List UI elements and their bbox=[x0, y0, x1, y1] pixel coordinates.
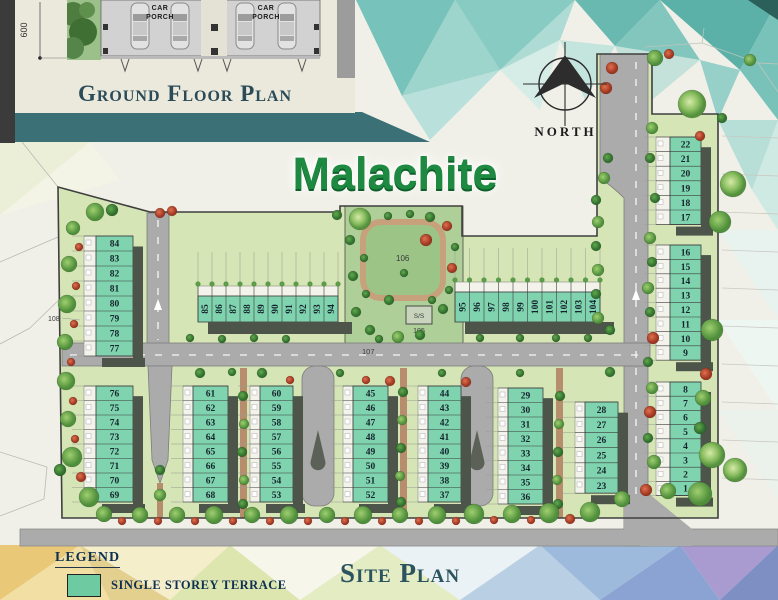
tree-icon bbox=[645, 307, 655, 317]
tree-icon bbox=[552, 475, 562, 485]
lot-73: 73 bbox=[110, 433, 120, 443]
tree-icon bbox=[461, 377, 471, 387]
lot-26: 26 bbox=[597, 436, 607, 446]
site-plan-page: 8483828180797877767574737271706985868788… bbox=[0, 0, 778, 600]
lot-62: 62 bbox=[206, 404, 216, 414]
north-compass: NORTH bbox=[518, 36, 613, 146]
compass-icon bbox=[518, 36, 613, 131]
lot-16: 16 bbox=[681, 248, 691, 258]
lot-82: 82 bbox=[110, 270, 120, 280]
tree-icon bbox=[60, 411, 76, 427]
tree-icon bbox=[70, 320, 78, 328]
lot-72: 72 bbox=[110, 447, 120, 457]
tree-icon bbox=[428, 296, 436, 304]
lot-33: 33 bbox=[521, 449, 531, 459]
tree-icon bbox=[169, 507, 185, 523]
tree-icon bbox=[695, 390, 711, 406]
lot-12: 12 bbox=[681, 306, 691, 316]
tree-icon bbox=[238, 499, 248, 509]
tree-icon bbox=[678, 90, 706, 118]
lot-36: 36 bbox=[521, 493, 531, 503]
left-dark-bar bbox=[0, 0, 15, 143]
tree-icon bbox=[584, 334, 592, 342]
lot-47: 47 bbox=[366, 418, 376, 428]
dimension-label: 600 bbox=[19, 22, 29, 37]
lot-57: 57 bbox=[272, 433, 282, 443]
lot-38: 38 bbox=[440, 476, 450, 486]
car-icon bbox=[278, 3, 296, 49]
tree-icon bbox=[76, 472, 86, 482]
lot-70: 70 bbox=[110, 476, 120, 486]
tree-icon bbox=[392, 331, 404, 343]
lot-93: 93 bbox=[313, 304, 323, 314]
tree-icon bbox=[195, 368, 205, 378]
tree-icon bbox=[345, 235, 355, 245]
lot-98: 98 bbox=[502, 302, 512, 312]
tree-icon bbox=[155, 465, 165, 475]
tree-icon bbox=[341, 517, 349, 525]
tree-icon bbox=[516, 369, 524, 377]
compass-label: NORTH bbox=[518, 124, 613, 140]
tree-icon bbox=[592, 264, 604, 276]
tree-icon bbox=[154, 517, 162, 525]
lot-22: 22 bbox=[681, 141, 691, 151]
lot-87: 87 bbox=[229, 304, 239, 314]
tree-icon bbox=[646, 382, 658, 394]
lot-31: 31 bbox=[521, 420, 531, 430]
tree-icon bbox=[351, 307, 361, 317]
lot-23: 23 bbox=[597, 482, 607, 492]
lot-40: 40 bbox=[440, 447, 450, 457]
tree-icon bbox=[378, 517, 386, 525]
tree-icon bbox=[527, 516, 535, 524]
lot-27: 27 bbox=[597, 421, 607, 431]
lot-19: 19 bbox=[681, 184, 691, 194]
lot-56: 56 bbox=[272, 447, 282, 457]
tree-icon bbox=[700, 368, 712, 380]
tree-icon bbox=[86, 203, 104, 221]
lot-35: 35 bbox=[521, 478, 531, 488]
lot-13: 13 bbox=[681, 292, 691, 302]
tree-icon bbox=[647, 257, 657, 267]
lot-71: 71 bbox=[110, 462, 120, 472]
lot-28: 28 bbox=[597, 406, 607, 416]
lot-88: 88 bbox=[243, 304, 253, 314]
lot-97: 97 bbox=[487, 302, 497, 312]
tree-icon bbox=[229, 517, 237, 525]
lot-67: 67 bbox=[206, 476, 216, 486]
legend-swatch bbox=[67, 574, 101, 597]
legend-heading: LEGEND bbox=[55, 550, 120, 568]
tree-icon bbox=[319, 507, 335, 523]
tree-icon bbox=[643, 357, 653, 367]
lot-101: 101 bbox=[545, 300, 555, 315]
ground-floor-plan-drawing: 600 CAR PORCH CAR P bbox=[15, 0, 355, 78]
tree-icon bbox=[239, 419, 249, 429]
tree-icon bbox=[598, 172, 610, 184]
tree-icon bbox=[205, 506, 223, 524]
tree-icon bbox=[282, 335, 290, 343]
lot-4: 4 bbox=[683, 442, 688, 452]
lot-76: 76 bbox=[110, 389, 120, 399]
tree-icon bbox=[605, 367, 615, 377]
lot-85: 85 bbox=[201, 304, 211, 314]
tree-icon bbox=[362, 376, 370, 384]
tree-icon bbox=[503, 505, 521, 523]
svg-text:CAR: CAR bbox=[152, 5, 169, 12]
tree-icon bbox=[67, 358, 75, 366]
tree-icon bbox=[238, 391, 248, 401]
tree-icon bbox=[688, 482, 712, 506]
tree-icon bbox=[154, 489, 166, 501]
tree-icon bbox=[592, 216, 604, 228]
lot-49: 49 bbox=[366, 447, 376, 457]
tree-icon bbox=[304, 517, 312, 525]
tree-icon bbox=[645, 153, 655, 163]
lot-78: 78 bbox=[110, 330, 120, 340]
tree-icon bbox=[392, 507, 408, 523]
lot-52: 52 bbox=[366, 491, 376, 501]
tree-icon bbox=[365, 325, 375, 335]
tree-icon bbox=[447, 263, 457, 273]
tree-icon bbox=[266, 517, 274, 525]
tree-icon bbox=[360, 254, 368, 262]
garden-strip bbox=[61, 0, 101, 60]
tree-icon bbox=[384, 295, 394, 305]
lot-24: 24 bbox=[597, 467, 607, 477]
tree-icon bbox=[476, 334, 484, 342]
lot-75: 75 bbox=[110, 404, 120, 414]
tree-icon bbox=[191, 517, 199, 525]
tree-icon bbox=[118, 517, 126, 525]
tree-icon bbox=[396, 443, 406, 453]
tree-icon bbox=[660, 483, 676, 499]
tree-icon bbox=[72, 282, 80, 290]
lot-46: 46 bbox=[366, 404, 376, 414]
lot-84: 84 bbox=[110, 240, 120, 250]
tree-icon bbox=[395, 471, 405, 481]
tree-icon bbox=[396, 497, 406, 507]
tree-icon bbox=[591, 241, 601, 251]
tree-icon bbox=[406, 210, 414, 218]
tree-icon bbox=[54, 464, 66, 476]
tree-icon bbox=[438, 369, 446, 377]
legend-item-label: SINGLE STOREY TERRACE bbox=[111, 578, 287, 593]
lot-99: 99 bbox=[516, 302, 526, 312]
tree-icon bbox=[516, 334, 524, 342]
lot-48: 48 bbox=[366, 433, 376, 443]
car-icon bbox=[171, 3, 189, 49]
tree-icon bbox=[425, 212, 435, 222]
substation-label: S/S bbox=[414, 313, 425, 320]
tree-icon bbox=[438, 304, 448, 314]
car-icon bbox=[236, 3, 254, 49]
lot-53: 53 bbox=[272, 491, 282, 501]
tree-icon bbox=[428, 506, 446, 524]
lot-66: 66 bbox=[206, 462, 216, 472]
lot-69: 69 bbox=[110, 491, 120, 501]
tree-icon bbox=[415, 330, 425, 340]
tree-icon bbox=[66, 221, 80, 235]
tree-icon bbox=[57, 372, 75, 390]
tree-icon bbox=[464, 504, 484, 524]
lot-80: 80 bbox=[110, 300, 120, 310]
tree-icon bbox=[132, 507, 148, 523]
lot-64: 64 bbox=[206, 433, 216, 443]
svg-text:PORCH: PORCH bbox=[252, 14, 280, 21]
tree-icon bbox=[647, 455, 661, 469]
tree-icon bbox=[744, 54, 756, 66]
ground-floor-plan-inset: 600 CAR PORCH CAR P bbox=[15, 0, 355, 113]
tree-icon bbox=[336, 369, 344, 377]
tree-icon bbox=[375, 335, 383, 343]
lot-18: 18 bbox=[681, 199, 691, 209]
lot-44: 44 bbox=[440, 389, 450, 399]
tree-icon bbox=[71, 435, 79, 443]
lot-15: 15 bbox=[681, 263, 691, 273]
tree-icon bbox=[415, 517, 423, 525]
tree-icon bbox=[79, 487, 99, 507]
tree-icon bbox=[709, 211, 731, 233]
lot-8: 8 bbox=[683, 385, 688, 395]
tree-icon bbox=[555, 391, 565, 401]
tree-icon bbox=[650, 193, 660, 203]
lot-55: 55 bbox=[272, 462, 282, 472]
lot-29: 29 bbox=[521, 391, 531, 401]
car-icon bbox=[131, 3, 149, 49]
lot-21: 21 bbox=[681, 155, 691, 165]
tree-icon bbox=[592, 312, 604, 324]
tree-icon bbox=[552, 334, 560, 342]
lot-45: 45 bbox=[366, 389, 376, 399]
lot-43: 43 bbox=[440, 404, 450, 414]
svg-text:PORCH: PORCH bbox=[146, 14, 174, 21]
svg-text:CAR: CAR bbox=[258, 5, 275, 12]
tree-icon bbox=[695, 131, 705, 141]
tree-icon bbox=[699, 442, 725, 468]
lot-34: 34 bbox=[521, 464, 531, 474]
main-road bbox=[62, 343, 650, 366]
tree-icon bbox=[565, 514, 575, 524]
dimension-chevrons bbox=[121, 59, 306, 71]
main-road-label: 107 bbox=[362, 347, 375, 356]
tree-icon bbox=[694, 422, 706, 434]
tree-icon bbox=[420, 234, 432, 246]
tree-icon bbox=[591, 195, 601, 205]
tree-icon bbox=[96, 506, 112, 522]
lot-74: 74 bbox=[110, 418, 120, 428]
tree-icon bbox=[398, 387, 408, 397]
tree-icon bbox=[250, 334, 258, 342]
tree-icon bbox=[280, 506, 298, 524]
tree-icon bbox=[58, 295, 76, 313]
tree-icon bbox=[717, 113, 727, 123]
lot-83: 83 bbox=[110, 255, 120, 265]
lot-30: 30 bbox=[521, 406, 531, 416]
lot-14: 14 bbox=[681, 277, 691, 287]
tree-icon bbox=[244, 507, 260, 523]
tree-icon bbox=[614, 491, 630, 507]
tree-icon bbox=[451, 243, 459, 251]
lot-2: 2 bbox=[683, 471, 688, 481]
lot-41: 41 bbox=[440, 433, 450, 443]
lot-60: 60 bbox=[272, 389, 282, 399]
lot-59: 59 bbox=[272, 404, 282, 414]
lot-6: 6 bbox=[683, 414, 688, 424]
lot-89: 89 bbox=[257, 304, 267, 314]
lot-90: 90 bbox=[271, 304, 281, 314]
tree-icon bbox=[605, 325, 615, 335]
tree-icon bbox=[644, 232, 656, 244]
lot-65: 65 bbox=[206, 447, 216, 457]
tree-icon bbox=[400, 269, 408, 277]
lot-81: 81 bbox=[110, 285, 120, 295]
tree-icon bbox=[664, 49, 674, 59]
tree-icon bbox=[397, 415, 407, 425]
tree-icon bbox=[720, 171, 746, 197]
tree-icon bbox=[69, 397, 77, 405]
tree-icon bbox=[57, 334, 73, 350]
lot-5: 5 bbox=[683, 428, 688, 438]
tree-icon bbox=[647, 50, 663, 66]
ground-floor-plan-caption: Ground Floor Plan bbox=[15, 81, 355, 107]
tree-icon bbox=[646, 122, 658, 134]
site-plan-caption: Site Plan bbox=[305, 558, 495, 589]
tree-icon bbox=[452, 517, 460, 525]
lot-58: 58 bbox=[272, 418, 282, 428]
lot-7: 7 bbox=[683, 400, 688, 410]
lot-91: 91 bbox=[285, 304, 295, 314]
lot-9: 9 bbox=[683, 349, 688, 359]
tree-icon bbox=[603, 153, 613, 163]
lot-37: 37 bbox=[440, 491, 450, 501]
tree-icon bbox=[62, 447, 82, 467]
lot-92: 92 bbox=[299, 304, 309, 314]
tree-icon bbox=[591, 289, 601, 299]
lot-102: 102 bbox=[560, 300, 570, 315]
tree-icon bbox=[348, 271, 358, 281]
tree-icon bbox=[228, 368, 236, 376]
lot-94: 94 bbox=[327, 304, 337, 314]
tree-icon bbox=[644, 406, 656, 418]
tree-icon bbox=[286, 376, 294, 384]
tree-icon bbox=[490, 516, 498, 524]
tree-icon bbox=[554, 419, 564, 429]
lot-32: 32 bbox=[521, 435, 531, 445]
west-boundary-label: 108 bbox=[48, 316, 60, 323]
tree-icon bbox=[61, 256, 77, 272]
tree-icon bbox=[239, 475, 249, 485]
park-label: 106 bbox=[396, 254, 410, 263]
tree-icon bbox=[580, 502, 600, 522]
tree-icon bbox=[75, 243, 83, 251]
lot-42: 42 bbox=[440, 418, 450, 428]
tree-icon bbox=[349, 208, 371, 230]
lot-3: 3 bbox=[683, 456, 688, 466]
tree-icon bbox=[643, 433, 653, 443]
tree-icon bbox=[553, 447, 563, 457]
lot-11: 11 bbox=[681, 320, 690, 330]
tree-icon bbox=[332, 210, 342, 220]
legend: LEGEND SINGLE STOREY TERRACE bbox=[55, 548, 287, 597]
lot-10: 10 bbox=[681, 335, 691, 345]
tree-icon bbox=[442, 221, 452, 231]
lot-79: 79 bbox=[110, 315, 120, 325]
lot-50: 50 bbox=[366, 462, 376, 472]
lot-54: 54 bbox=[272, 476, 282, 486]
tree-icon bbox=[257, 368, 267, 378]
tree-icon bbox=[539, 503, 559, 523]
tree-icon bbox=[237, 447, 247, 457]
legend-item: SINGLE STOREY TERRACE bbox=[67, 574, 287, 597]
lot-95: 95 bbox=[458, 302, 468, 312]
tree-icon bbox=[384, 212, 392, 220]
inset-edge bbox=[337, 0, 355, 78]
tree-icon bbox=[218, 335, 226, 343]
tree-icon bbox=[445, 286, 453, 294]
lot-51: 51 bbox=[366, 476, 376, 486]
tree-icon bbox=[106, 204, 118, 216]
lot-68: 68 bbox=[206, 491, 216, 501]
lot-103: 103 bbox=[574, 300, 584, 315]
tree-icon bbox=[385, 376, 395, 386]
tree-icon bbox=[354, 506, 372, 524]
lot-39: 39 bbox=[440, 462, 450, 472]
lot-1: 1 bbox=[683, 485, 688, 495]
lot-77: 77 bbox=[110, 345, 120, 355]
lot-20: 20 bbox=[681, 170, 691, 180]
lot-61: 61 bbox=[206, 389, 216, 399]
lot-100: 100 bbox=[531, 300, 541, 315]
tree-icon bbox=[642, 282, 654, 294]
lot-96: 96 bbox=[473, 302, 483, 312]
tree-icon bbox=[362, 290, 370, 298]
tree-icon bbox=[186, 334, 194, 342]
tree-icon bbox=[167, 206, 177, 216]
tree-icon bbox=[723, 458, 747, 482]
lot-17: 17 bbox=[681, 214, 691, 224]
tree-icon bbox=[155, 208, 165, 218]
tree-icon bbox=[647, 332, 659, 344]
lot-25: 25 bbox=[597, 451, 607, 461]
project-title: Malachite bbox=[250, 148, 540, 200]
lot-86: 86 bbox=[215, 304, 225, 314]
tree-icon bbox=[640, 484, 652, 496]
tree-icon bbox=[701, 319, 723, 341]
lot-63: 63 bbox=[206, 418, 216, 428]
